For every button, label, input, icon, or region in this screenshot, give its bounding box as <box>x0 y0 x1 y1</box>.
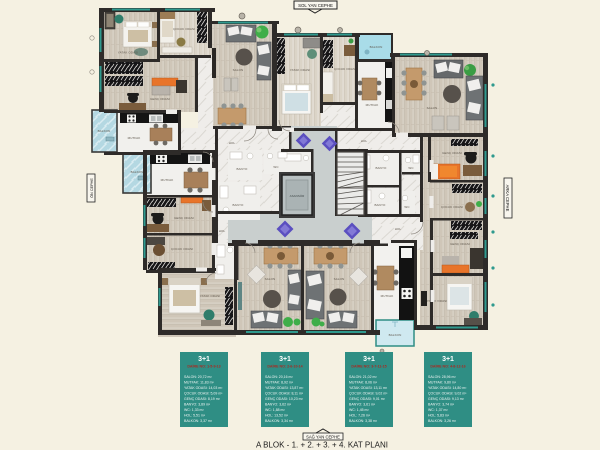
svg-text:HOL: 13,52 m²: HOL: 13,52 m² <box>265 414 289 418</box>
svg-text:WC: WC <box>273 165 279 169</box>
svg-text:YATAK ODASI: 14,03 m²: YATAK ODASI: 14,03 m² <box>184 386 223 390</box>
svg-text:WC: 1,33 m²: WC: 1,33 m² <box>184 408 204 412</box>
svg-text:WC: WC <box>408 166 414 170</box>
svg-text:SOL YAN CEPHE: SOL YAN CEPHE <box>298 3 333 8</box>
svg-text:ÖN CEPHE: ÖN CEPHE <box>90 178 94 198</box>
svg-text:HOL: 5,83 m²: HOL: 5,83 m² <box>428 414 450 418</box>
svg-text:ÇOCUK ODASI: 9,02 m²: ÇOCUK ODASI: 9,02 m² <box>428 392 467 396</box>
svg-text:WC: 1,45 m²: WC: 1,45 m² <box>349 408 369 412</box>
svg-text:BANYO: 3,61 m²: BANYO: 3,61 m² <box>349 403 376 407</box>
svg-text:DAİRE NO: 1-5-9-13: DAİRE NO: 1-5-9-13 <box>187 365 220 369</box>
svg-text:BANYO: BANYO <box>232 203 244 207</box>
svg-text:DAİRE NO: 3-7-11-15: DAİRE NO: 3-7-11-15 <box>351 365 386 369</box>
svg-text:GENÇ ODASI: GENÇ ODASI <box>150 97 170 101</box>
svg-text:BALKON: 3,38 m²: BALKON: 3,38 m² <box>349 419 378 423</box>
svg-text:HOL: 5,51 m²: HOL: 5,51 m² <box>184 414 206 418</box>
svg-text:BALKON: BALKON <box>98 129 111 133</box>
svg-text:3+1: 3+1 <box>279 356 291 363</box>
svg-text:GENÇ ODASI: GENÇ ODASI <box>442 151 462 155</box>
svg-text:BANYO: 3,74 m²: BANYO: 3,74 m² <box>428 403 455 407</box>
svg-text:YATAK ODASI: YATAK ODASI <box>200 294 221 298</box>
svg-text:ÇOCUK ODASI: 9,02 m²: ÇOCUK ODASI: 9,02 m² <box>349 392 388 396</box>
svg-text:DAİRE NO: 4-8-12-16: DAİRE NO: 4-8-12-16 <box>430 365 465 369</box>
svg-text:SALON: SALON <box>233 68 244 72</box>
svg-text:HOL: HOL <box>395 227 402 231</box>
svg-text:BANYO: BANYO <box>374 203 386 207</box>
svg-text:SALON: 20,16 m²: SALON: 20,16 m² <box>265 375 293 379</box>
svg-text:MUTFAK: MUTFAK <box>366 103 379 107</box>
svg-text:YATAK ODASI: YATAK ODASI <box>290 68 311 72</box>
svg-text:YATAK ODASI: 13,11 m²: YATAK ODASI: 13,11 m² <box>349 386 388 390</box>
svg-text:ÇOCUK ODASI: ÇOCUK ODASI <box>173 27 195 31</box>
svg-text:MUTFAK: 11,83 m²: MUTFAK: 11,83 m² <box>184 381 215 385</box>
svg-text:MUTFAK: 8,06 m²: MUTFAK: 8,06 m² <box>349 381 378 385</box>
svg-text:MUTFAK: MUTFAK <box>128 136 141 140</box>
svg-text:SALON: SALON <box>334 277 345 281</box>
svg-text:SALON: SALON <box>427 106 438 110</box>
svg-text:MUTFAK: 8,92 m²: MUTFAK: 8,92 m² <box>265 381 294 385</box>
svg-text:WC: 1,88 m²: WC: 1,88 m² <box>265 408 285 412</box>
svg-text:BALKON: 3,26 m²: BALKON: 3,26 m² <box>428 419 457 423</box>
svg-text:3+1: 3+1 <box>363 356 375 363</box>
svg-text:BALKON: 3,34 m²: BALKON: 3,34 m² <box>265 419 294 423</box>
svg-text:BALKON: BALKON <box>131 170 144 174</box>
svg-text:A BLOK - 1. + 2. + 3. + 4. KAT: A BLOK - 1. + 2. + 3. + 4. KAT PLANI <box>256 441 388 450</box>
svg-text:MUTFAK: MUTFAK <box>381 294 394 298</box>
svg-text:WC: WC <box>404 205 410 209</box>
svg-text:YATAK ODASI: YATAK ODASI <box>118 51 139 55</box>
svg-text:ÇOCUK ODASI: ÇOCUK ODASI <box>441 205 463 209</box>
svg-text:SALON: SALON <box>265 277 276 281</box>
svg-text:ÇOCUK ODASI: ÇOCUK ODASI <box>171 247 193 251</box>
svg-text:SAĞ YAN CEPHE: SAĞ YAN CEPHE <box>306 435 340 440</box>
svg-text:ÇOCUK ODASI: 5,09 m²: ÇOCUK ODASI: 5,09 m² <box>184 392 223 396</box>
svg-text:HOL: HOL <box>219 229 226 233</box>
svg-text:BANYO: 3,62 m²: BANYO: 3,62 m² <box>265 403 292 407</box>
svg-text:SALON: 28,96 m²: SALON: 28,96 m² <box>428 375 456 379</box>
svg-text:HOL: HOL <box>361 139 368 143</box>
svg-text:GENÇ ODASI: 10,23 m²: GENÇ ODASI: 10,23 m² <box>265 397 304 401</box>
svg-text:ÇOCUK ODASI: ÇOCUK ODASI <box>334 67 356 71</box>
svg-text:YATAK ODASI: 14,80 m²: YATAK ODASI: 14,80 m² <box>428 386 467 390</box>
svg-text:ÇOCUK ODASI: 8,11 m²: ÇOCUK ODASI: 8,11 m² <box>265 392 304 396</box>
svg-text:GENÇ ODASI: GENÇ ODASI <box>450 242 470 246</box>
svg-text:3+1: 3+1 <box>198 356 210 363</box>
svg-text:GENÇ ODASI: 8,19 m²: GENÇ ODASI: 8,19 m² <box>184 397 221 401</box>
svg-text:SALON: 20,72 m²: SALON: 20,72 m² <box>184 375 212 379</box>
svg-text:ARKA CEPHE: ARKA CEPHE <box>505 185 510 212</box>
svg-text:YATAK ODASI: 13,87 m²: YATAK ODASI: 13,87 m² <box>265 386 304 390</box>
svg-text:BALKON: BALKON <box>389 333 402 337</box>
svg-text:MUTFAK: 9,80 m²: MUTFAK: 9,80 m² <box>428 381 457 385</box>
svg-text:GENÇ ODASI: 9,13 m²: GENÇ ODASI: 9,13 m² <box>428 397 465 401</box>
svg-text:BANYO: 3,89 m²: BANYO: 3,89 m² <box>184 403 211 407</box>
svg-text:YATAK ODASI: YATAK ODASI <box>427 299 448 303</box>
svg-text:BALKON: 3,37 m²: BALKON: 3,37 m² <box>184 419 213 423</box>
svg-text:GENÇ ODASI: 9,01 m²: GENÇ ODASI: 9,01 m² <box>349 397 386 401</box>
svg-text:ASANSÖR: ASANSÖR <box>290 194 306 198</box>
svg-text:BANYO: BANYO <box>375 166 387 170</box>
svg-text:HOL: HOL <box>229 141 236 145</box>
svg-text:SALON: 21,02 m²: SALON: 21,02 m² <box>349 375 377 379</box>
svg-text:MUTFAK: MUTFAK <box>161 178 174 182</box>
svg-text:BALKON: BALKON <box>370 45 383 49</box>
svg-text:BANYO: BANYO <box>236 167 248 171</box>
svg-text:3+1: 3+1 <box>442 356 454 363</box>
svg-text:GENÇ ODASI: GENÇ ODASI <box>174 216 194 220</box>
svg-text:WC: 1,37 m²: WC: 1,37 m² <box>428 408 448 412</box>
svg-text:DAİRE NO: 2-6-10-14: DAİRE NO: 2-6-10-14 <box>267 365 302 369</box>
svg-text:HOL: 7,26 m²: HOL: 7,26 m² <box>349 414 371 418</box>
